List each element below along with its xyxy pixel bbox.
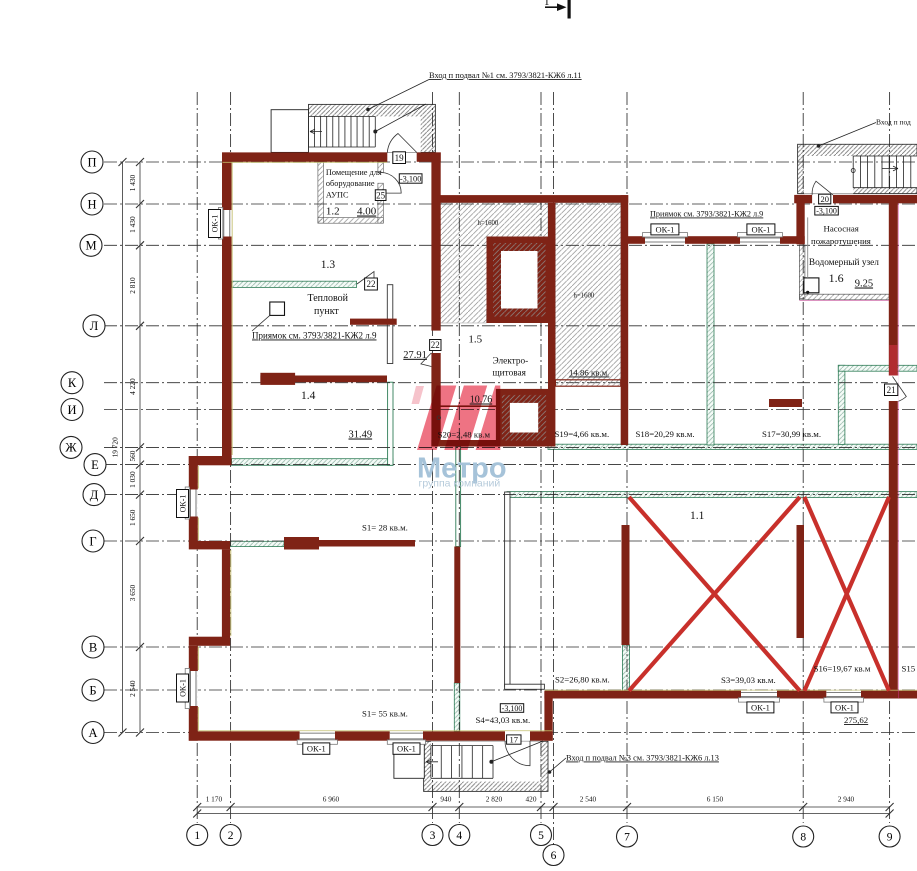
svg-text:9: 9 (887, 832, 893, 844)
svg-text:1.2: 1.2 (326, 206, 340, 218)
svg-text:А: А (88, 726, 97, 740)
svg-text:1.1: 1.1 (690, 510, 705, 522)
svg-text:1 430: 1 430 (128, 174, 137, 191)
svg-text:7: 7 (624, 832, 630, 844)
svg-text:10.76: 10.76 (470, 395, 493, 406)
svg-text:К: К (68, 376, 77, 390)
svg-text:S2=26,80 кв.м.: S2=26,80 кв.м. (555, 675, 610, 685)
svg-text:4 220: 4 220 (128, 378, 137, 395)
svg-text:Водомерный узел: Водомерный узел (809, 257, 879, 268)
svg-text:1 650: 1 650 (128, 509, 137, 526)
svg-text:Н: Н (87, 197, 96, 211)
svg-text:h=1600: h=1600 (478, 220, 499, 227)
svg-text:Вход п подвал №3 см. 3793/3821: Вход п подвал №3 см. 3793/3821-КЖ6 л.13 (566, 754, 719, 763)
svg-text:-3,100: -3,100 (816, 207, 837, 216)
svg-text:17: 17 (510, 735, 519, 745)
svg-text:1 170: 1 170 (206, 795, 223, 804)
svg-text:-3,100: -3,100 (502, 704, 523, 713)
svg-text:Электро-: Электро- (493, 357, 529, 367)
svg-text:6 960: 6 960 (323, 795, 340, 804)
svg-text:S20=2,48 кв.м: S20=2,48 кв.м (438, 430, 491, 440)
svg-text:1 030: 1 030 (128, 471, 137, 488)
svg-text:14.86 кв.м.: 14.86 кв.м. (569, 368, 609, 378)
svg-text:1: 1 (544, 0, 550, 8)
svg-text:31.49: 31.49 (349, 430, 373, 441)
svg-text:S1= 55 кв.м.: S1= 55 кв.м. (362, 709, 408, 719)
svg-text:Приямок см. 3793/3821-КЖ2 л.9: Приямок см. 3793/3821-КЖ2 л.9 (252, 331, 377, 341)
svg-text:Тепловой: Тепловой (308, 293, 349, 304)
svg-text:20: 20 (820, 194, 829, 204)
svg-text:2 810: 2 810 (128, 277, 137, 294)
svg-text:оборудование: оборудование (326, 179, 375, 188)
svg-text:ОК-1: ОК-1 (307, 744, 326, 754)
svg-text:1.4: 1.4 (301, 390, 316, 402)
svg-text:S4=43,03 кв.м.: S4=43,03 кв.м. (476, 715, 531, 725)
svg-text:2 940: 2 940 (838, 795, 855, 804)
svg-text:27.91: 27.91 (403, 350, 427, 361)
svg-text:21: 21 (887, 385, 896, 395)
svg-text:1.5: 1.5 (468, 334, 482, 346)
svg-text:S3=39,03 кв.м.: S3=39,03 кв.м. (721, 675, 776, 685)
svg-text:Л: Л (90, 319, 99, 333)
svg-text:1: 1 (194, 830, 200, 842)
svg-text:ОК-1: ОК-1 (397, 744, 416, 754)
svg-text:ОК-1: ОК-1 (178, 679, 187, 697)
svg-text:S17=30,99 кв.м.: S17=30,99 кв.м. (762, 429, 821, 439)
svg-text:h=1600: h=1600 (574, 293, 595, 300)
svg-text:ОК-1: ОК-1 (751, 224, 770, 234)
svg-text:-3,100: -3,100 (400, 174, 421, 183)
svg-text:2: 2 (228, 830, 234, 842)
svg-text:Д: Д (90, 488, 99, 502)
svg-text:S16=19,67 кв.м: S16=19,67 кв.м (814, 664, 871, 674)
svg-text:S18=20,29 кв.м.: S18=20,29 кв.м. (636, 429, 695, 439)
svg-text:1.3: 1.3 (321, 259, 336, 271)
svg-text:Ж: Ж (65, 441, 77, 455)
svg-text:19 720: 19 720 (111, 437, 120, 457)
svg-text:3 650: 3 650 (128, 584, 137, 601)
svg-text:4.00: 4.00 (357, 206, 377, 218)
svg-text:ОК-1: ОК-1 (751, 702, 770, 712)
svg-text:Вход п под: Вход п под (876, 118, 911, 127)
svg-text:3: 3 (430, 830, 436, 842)
svg-text:группа компаний: группа компаний (419, 478, 501, 490)
svg-text:560: 560 (128, 450, 137, 461)
svg-text:22: 22 (431, 340, 440, 350)
svg-text:275,62: 275,62 (844, 715, 868, 725)
svg-text:пожаротушения: пожаротушения (811, 236, 871, 246)
svg-text:S1= 28 кв.м.: S1= 28 кв.м. (362, 523, 408, 533)
svg-text:Вход п подвал №1 см. 3793/3821: Вход п подвал №1 см. 3793/3821-КЖ6 л.11 (429, 71, 582, 80)
svg-text:1 430: 1 430 (128, 216, 137, 233)
svg-text:И: И (67, 403, 76, 417)
svg-text:Приямок см. 3793/3821-КЖ2 л.9: Приямок см. 3793/3821-КЖ2 л.9 (650, 210, 763, 219)
svg-text:2 820: 2 820 (486, 795, 503, 804)
svg-text:Б: Б (89, 683, 96, 697)
svg-text:S15: S15 (902, 664, 916, 674)
svg-text:2 540: 2 540 (128, 680, 137, 697)
svg-text:25: 25 (376, 190, 386, 200)
svg-text:2 540: 2 540 (580, 795, 597, 804)
svg-text:ОК-1: ОК-1 (835, 702, 854, 712)
svg-text:М: М (85, 239, 96, 253)
svg-text:ОК-1: ОК-1 (655, 224, 674, 234)
svg-text:6 150: 6 150 (707, 795, 724, 804)
svg-text:1.6: 1.6 (829, 271, 844, 285)
svg-text:Насосная: Насосная (824, 224, 859, 234)
svg-text:S19=4,66 кв.м.: S19=4,66 кв.м. (555, 429, 610, 439)
svg-text:22: 22 (367, 279, 376, 289)
svg-text:Помещение для: Помещение для (326, 168, 382, 177)
svg-text:6: 6 (551, 850, 557, 862)
svg-text:420: 420 (526, 795, 537, 804)
svg-text:940: 940 (440, 795, 451, 804)
svg-text:4: 4 (456, 830, 462, 842)
svg-text:8: 8 (800, 832, 806, 844)
svg-text:ОК-1: ОК-1 (178, 495, 187, 513)
svg-text:АУПС: АУПС (326, 191, 349, 200)
svg-text:5: 5 (538, 830, 544, 842)
svg-text:щитовая: щитовая (493, 369, 527, 379)
svg-text:Е: Е (91, 458, 99, 472)
svg-text:19: 19 (395, 153, 405, 163)
svg-text:П: П (87, 155, 96, 169)
svg-text:9.25: 9.25 (855, 279, 873, 290)
svg-text:Г: Г (89, 534, 96, 548)
svg-text:пункт: пункт (314, 306, 339, 317)
svg-text:В: В (89, 640, 97, 654)
svg-text:ОК-1: ОК-1 (210, 215, 219, 233)
